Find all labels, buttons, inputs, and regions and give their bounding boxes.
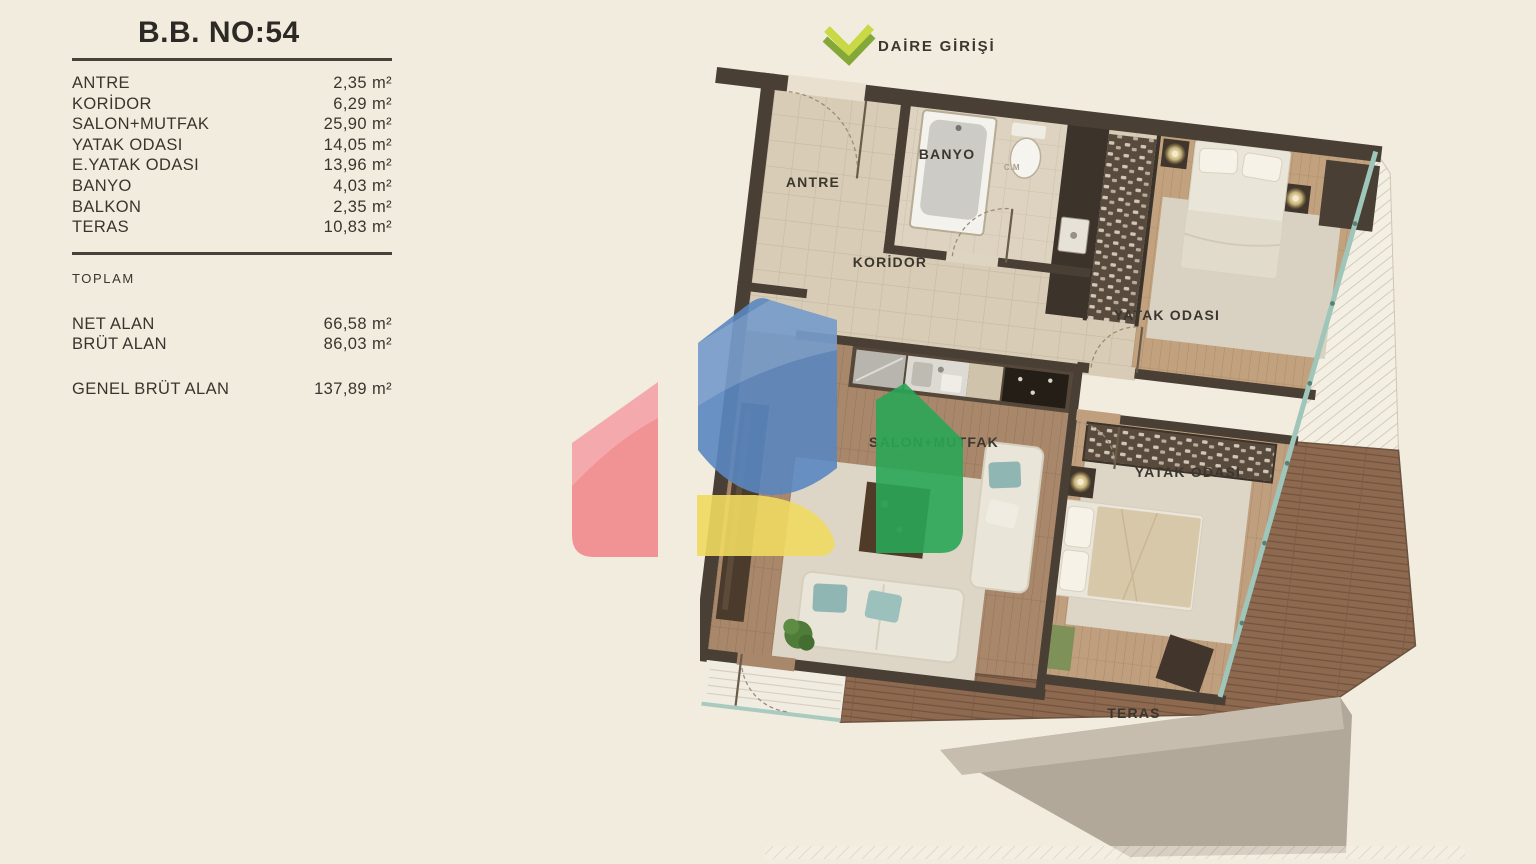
bedroom1-label: YATAK ODASI (1114, 307, 1220, 323)
watermark-logo (560, 290, 980, 580)
entrance-label: DAİRE GİRİŞİ (878, 38, 995, 55)
logo-shapes (572, 298, 963, 557)
room-label: KORİDOR (72, 94, 152, 115)
divider-top (72, 58, 392, 61)
unit-title: B.B. NO:54 (138, 16, 392, 50)
entrance-arrow-icon (825, 27, 873, 61)
banyo-label: BANYO (919, 146, 976, 162)
unit-info-panel: B.B. NO:54 ANTRE 2,35 m² KORİDOR 6,29 m²… (72, 16, 392, 400)
pillow (1059, 549, 1090, 592)
room-area-row: YATAK ODASI 14,05 m² (72, 135, 392, 156)
total-row: NET ALAN 66,58 m² (72, 314, 392, 335)
room-area-row: SALON+MUTFAK 25,90 m² (72, 114, 392, 135)
room-area: 14,05 m² (324, 135, 392, 156)
room-area: 6,29 m² (333, 94, 392, 115)
room-area-row: TERAS 10,83 m² (72, 217, 392, 238)
room-area-row: ANTRE 2,35 m² (72, 73, 392, 94)
room-label: ANTRE (72, 73, 130, 94)
totals-list: NET ALAN 66,58 m² BRÜT ALAN 86,03 m² (72, 314, 392, 355)
room-area-list: ANTRE 2,35 m² KORİDOR 6,29 m² SALON+MUTF… (72, 73, 392, 238)
totals-header: TOPLAM (72, 271, 392, 286)
pillow (1064, 506, 1095, 549)
room-area-row: E.YATAK ODASI 13,96 m² (72, 155, 392, 176)
bottom-texture-strip (765, 846, 1465, 859)
room-label: TERAS (72, 217, 129, 238)
grand-total-area: 137,89 m² (314, 379, 392, 400)
room-area-row: BALKON 2,35 m² (72, 197, 392, 218)
room-label: BALKON (72, 197, 141, 218)
grand-total-row: GENEL BRÜT ALAN 137,89 m² (72, 379, 392, 400)
teras-label: TERAS (1107, 705, 1160, 721)
total-area: 86,03 m² (324, 334, 392, 355)
room-label: YATAK ODASI (72, 135, 183, 156)
pillow (1199, 148, 1238, 174)
total-area: 66,58 m² (324, 314, 392, 335)
room-area: 2,35 m² (333, 73, 392, 94)
room-area-row: BANYO 4,03 m² (72, 176, 392, 197)
divider-bottom (72, 252, 392, 255)
bed-duvet (1087, 506, 1201, 608)
bathtub-basin (919, 119, 988, 221)
entry-stub-wall (715, 67, 765, 89)
room-area: 10,83 m² (324, 217, 392, 238)
grand-total-label: GENEL BRÜT ALAN (72, 379, 229, 400)
room-area: 13,96 m² (324, 155, 392, 176)
total-label: BRÜT ALAN (72, 334, 167, 355)
room-area: 4,03 m² (333, 176, 392, 197)
floor-plan-page: B.B. NO:54 ANTRE 2,35 m² KORİDOR 6,29 m²… (0, 0, 1536, 864)
washer-label: C.M (1004, 163, 1020, 172)
room-label: BANYO (72, 176, 132, 197)
logo-shape-yellow (697, 495, 834, 556)
room-area: 25,90 m² (324, 114, 392, 135)
antre-label: ANTRE (786, 174, 840, 190)
koridor-label: KORİDOR (853, 254, 928, 270)
room-area: 2,35 m² (333, 197, 392, 218)
total-label: NET ALAN (72, 314, 155, 335)
room-label: SALON+MUTFAK (72, 114, 209, 135)
cushion (812, 583, 847, 613)
room-area-row: KORİDOR 6,29 m² (72, 94, 392, 115)
total-row: BRÜT ALAN 86,03 m² (72, 334, 392, 355)
bedroom2-label: YATAK ODASI (1135, 464, 1241, 480)
cushion (988, 461, 1021, 488)
room-label: E.YATAK ODASI (72, 155, 199, 176)
logo-shape-green (876, 383, 963, 553)
